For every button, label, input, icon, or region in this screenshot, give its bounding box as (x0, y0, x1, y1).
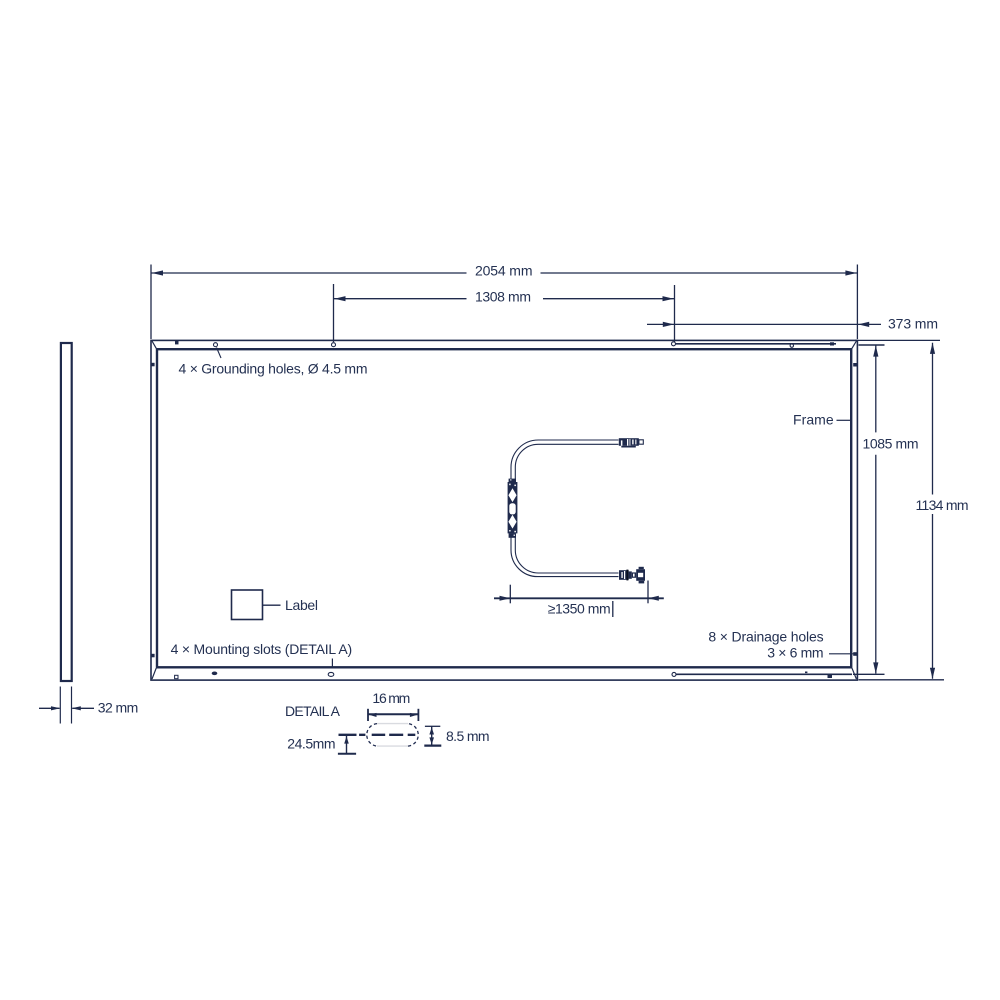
svg-text:2054 mm: 2054 mm (475, 263, 533, 279)
svg-text:4 × Grounding holes, Ø 4.5 mm: 4 × Grounding holes, Ø 4.5 mm (179, 360, 368, 376)
svg-text:8.5 mm: 8.5 mm (446, 728, 490, 744)
svg-text:Frame: Frame (793, 411, 834, 427)
svg-text:DETAIL A: DETAIL A (285, 703, 341, 719)
svg-text:1308 mm: 1308 mm (475, 288, 531, 304)
svg-text:3 × 6 mm: 3 × 6 mm (767, 644, 823, 660)
svg-text:16 mm: 16 mm (372, 690, 410, 706)
svg-text:1085 mm: 1085 mm (863, 435, 919, 451)
svg-text:4 × Mounting slots (DETAIL A): 4 × Mounting slots (DETAIL A) (171, 641, 353, 657)
svg-text:373 mm: 373 mm (888, 316, 938, 332)
svg-text:1134 mm: 1134 mm (916, 497, 969, 513)
svg-text:8 × Drainage holes: 8 × Drainage holes (708, 629, 823, 645)
svg-text:≥1350 mm: ≥1350 mm (548, 600, 611, 616)
svg-text:32 mm: 32 mm (98, 700, 139, 716)
svg-text:Label: Label (285, 597, 318, 613)
svg-text:24.5mm: 24.5mm (287, 735, 335, 751)
